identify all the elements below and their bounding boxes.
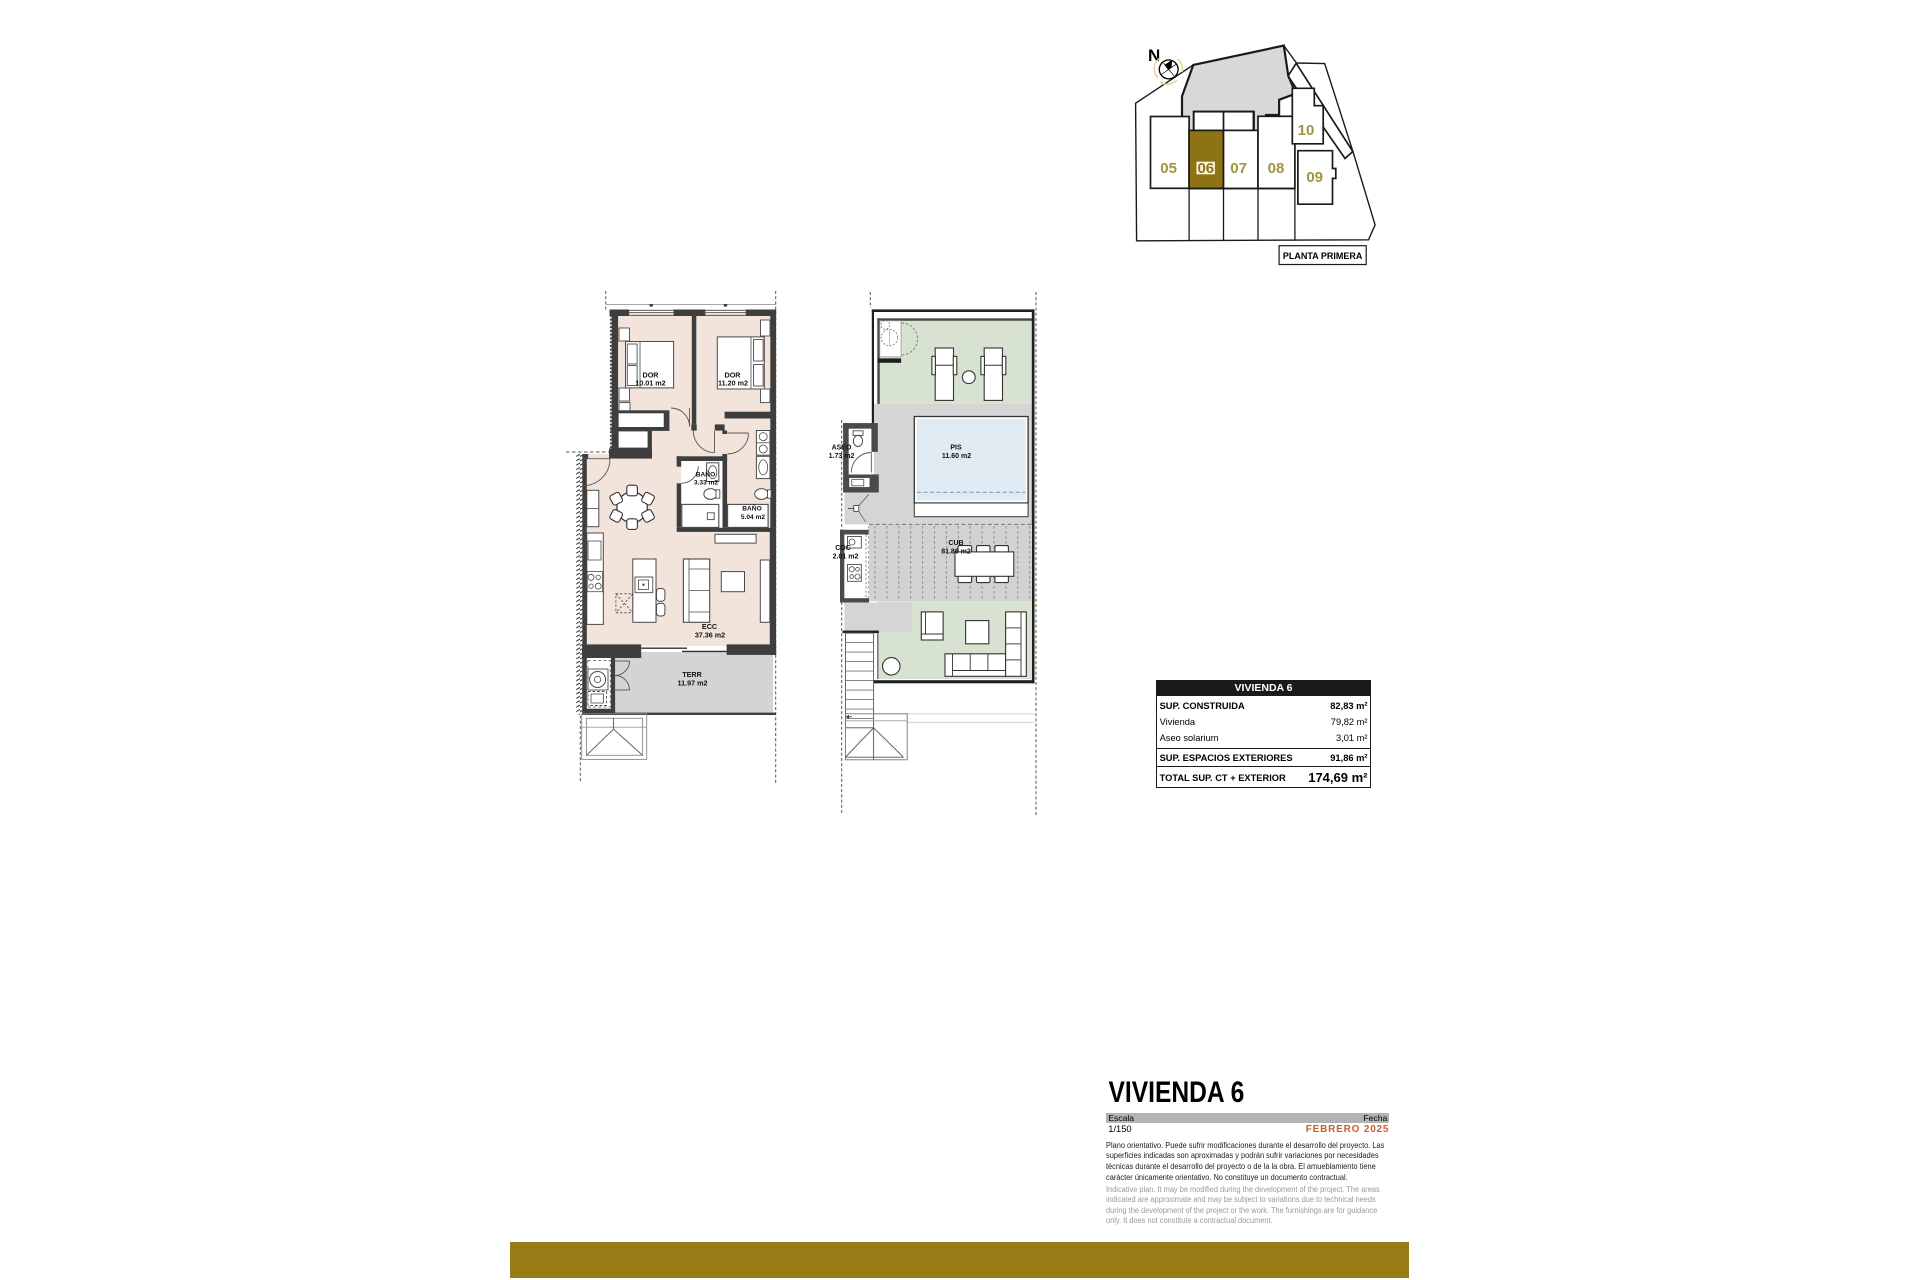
svg-text:81.86 m2: 81.86 m2 [941, 549, 971, 556]
svg-text:06: 06 [1197, 160, 1214, 177]
svg-text:2.01 m2: 2.01 m2 [833, 554, 859, 561]
svg-text:COC: COC [835, 545, 851, 552]
svg-text:11.97 m2: 11.97 m2 [678, 679, 708, 688]
svg-text:PIS: PIS [950, 445, 962, 452]
svg-text:BAÑO: BAÑO [742, 504, 761, 513]
svg-text:11.60 m2: 11.60 m2 [942, 453, 971, 460]
svg-text:37.36 m2: 37.36 m2 [695, 631, 725, 640]
svg-text:08: 08 [1268, 160, 1285, 177]
svg-text:3.33 m2: 3.33 m2 [694, 480, 719, 487]
svg-text:CUB: CUB [948, 540, 963, 547]
svg-text:07: 07 [1230, 160, 1247, 177]
svg-text:10: 10 [1298, 122, 1315, 139]
svg-text:BAÑO: BAÑO [696, 470, 715, 479]
svg-text:05: 05 [1160, 160, 1177, 177]
svg-text:1.73 m2: 1.73 m2 [829, 453, 855, 460]
svg-text:10.01 m2: 10.01 m2 [635, 379, 665, 388]
svg-text:ASEO: ASEO [832, 445, 852, 452]
svg-text:PLANTA PRIMERA: PLANTA PRIMERA [1283, 251, 1363, 261]
svg-text:5.04 m2: 5.04 m2 [741, 514, 766, 521]
svg-text:11.20 m2: 11.20 m2 [718, 379, 748, 388]
svg-text:N: N [1148, 46, 1160, 65]
svg-text:09: 09 [1306, 169, 1323, 186]
